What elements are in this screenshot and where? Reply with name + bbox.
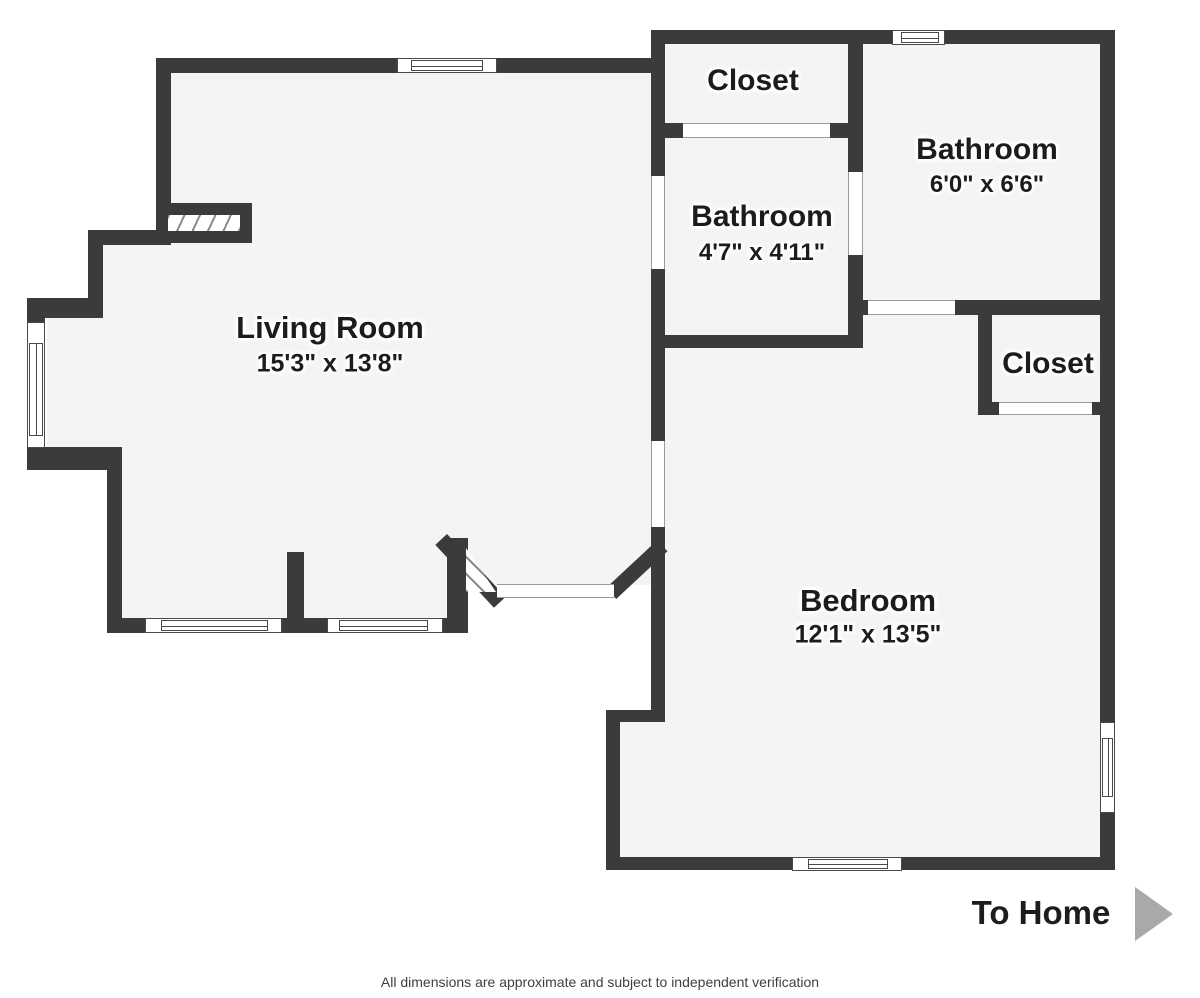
window-pane (339, 620, 428, 631)
to-home-label: To Home (972, 894, 1111, 932)
window-pane (161, 620, 268, 631)
room-label-closet-top: Closet (707, 64, 799, 98)
room-dimensions-bathroom-top-right: 6'0" x 6'6" (930, 171, 1044, 199)
floor-bathroom-middle (665, 138, 848, 335)
window-symbol (145, 618, 282, 633)
floor-living-room-lower-left (122, 460, 171, 618)
room-label-closet-right: Closet (1002, 347, 1094, 381)
window-symbol (327, 618, 443, 633)
wall-stub (287, 552, 304, 633)
room-label-living-room: Living Room (236, 310, 424, 346)
door-opening (651, 176, 665, 269)
window-pane (411, 60, 483, 71)
door-opening (848, 172, 863, 255)
room-label-bathroom-top-right: Bathroom (916, 133, 1058, 167)
footer-disclaimer: All dimensions are approximate and subje… (0, 974, 1200, 990)
window-symbol (1100, 722, 1115, 813)
floor-plan: Living Room 15'3" x 13'8" Closet Bathroo… (0, 0, 1200, 998)
floor-living-room-bay1 (103, 245, 171, 460)
door-opening (999, 402, 1092, 415)
door-opening (868, 300, 955, 315)
door-opening (651, 441, 665, 527)
door-opening (683, 123, 830, 138)
window-symbol (27, 322, 45, 448)
wall (107, 458, 122, 633)
room-dimensions-bathroom-middle: 4'7" x 4'11" (699, 239, 825, 267)
to-home-arrow-icon (1135, 887, 1173, 941)
room-dimensions-living-room: 15'3" x 13'8" (257, 350, 404, 379)
window-pane (1102, 738, 1113, 797)
floor-bedroom-lower-left (620, 722, 665, 857)
window-pane (808, 859, 888, 869)
wall (651, 335, 863, 348)
room-label-bathroom-middle: Bathroom (691, 200, 833, 234)
window-symbol (792, 857, 902, 871)
window-symbol (397, 58, 497, 73)
room-dimensions-bedroom: 12'1" x 13'5" (795, 621, 942, 650)
floor-living-room-bay2 (47, 318, 103, 447)
window-symbol (892, 30, 945, 45)
wall (651, 30, 1115, 44)
window-pane (901, 32, 939, 43)
window-pane (29, 343, 43, 436)
wall (606, 710, 620, 870)
room-label-bedroom: Bedroom (800, 583, 936, 619)
door-opening-passage (497, 584, 614, 598)
fireplace-symbol (156, 203, 252, 243)
wall (978, 303, 992, 415)
